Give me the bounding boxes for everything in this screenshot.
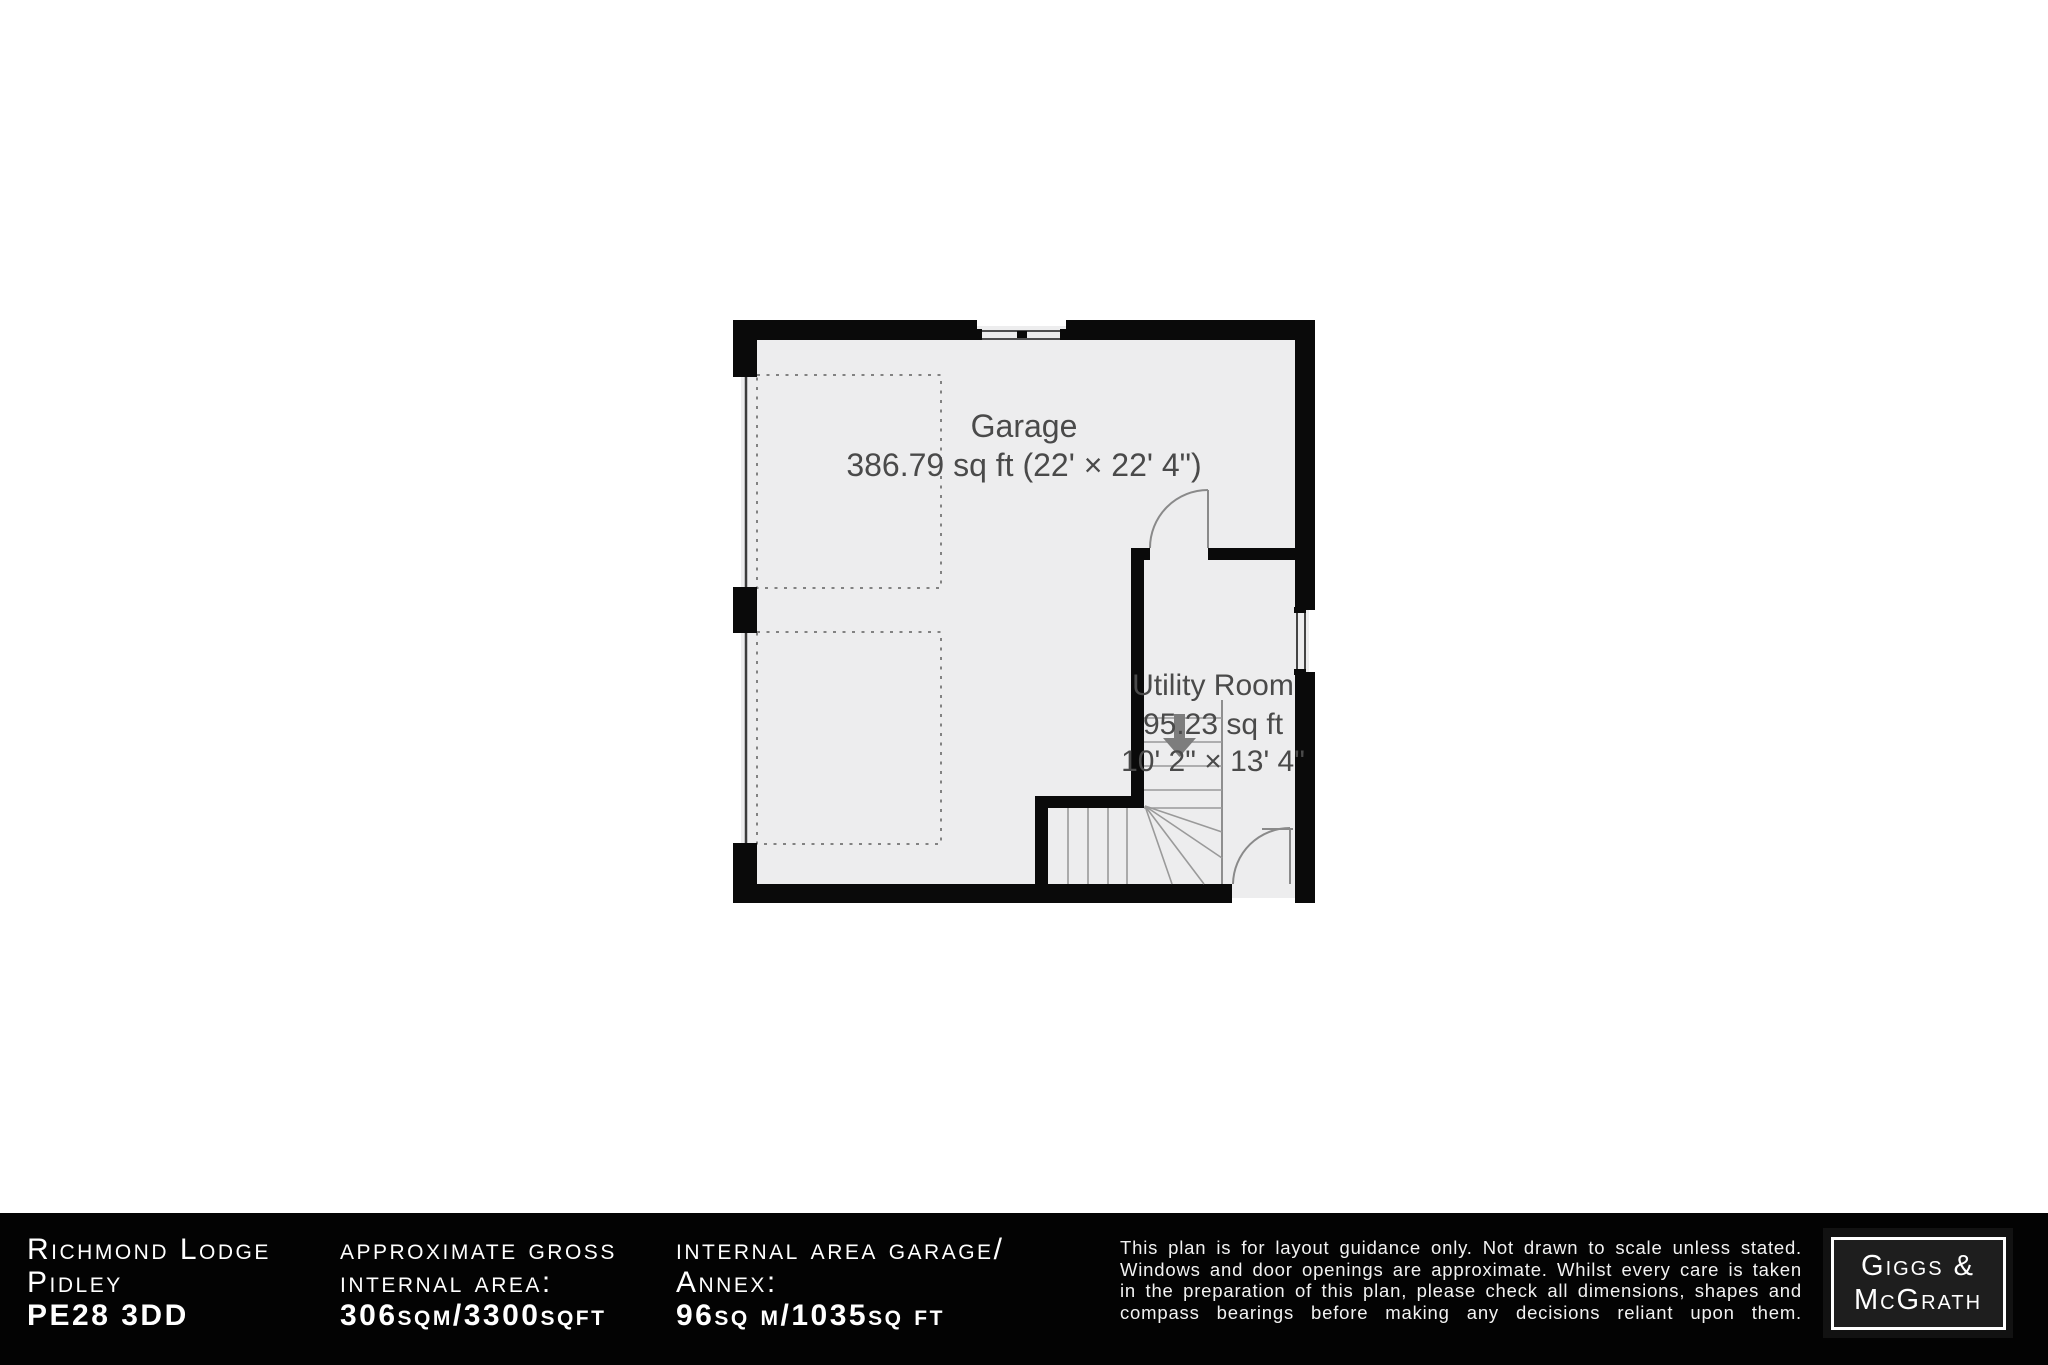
- garage-area-value: 96sq m/1035sq ft: [676, 1299, 1004, 1332]
- garage-area-label: 386.79 sq ft (22' × 22' 4"): [846, 447, 1201, 483]
- wall-right-lower: [1295, 672, 1315, 903]
- utility-dims-label: 10' 2" × 13' 4": [1121, 745, 1305, 778]
- utility-label: Utility Room: [1132, 669, 1294, 702]
- floorplan-page: Garage 386.79 sq ft (22' × 22' 4") Utili…: [0, 0, 2048, 1365]
- logo-line-2: McGrath: [1854, 1283, 1982, 1317]
- wall-right-upper: [1295, 320, 1315, 610]
- gross-area-line-1: approximate gross: [340, 1233, 617, 1266]
- disclaimer-text: This plan is for layout guidance only. N…: [1120, 1237, 1802, 1323]
- garage-annex-area: internal area garage/ Annex: 96sq m/1035…: [676, 1233, 1004, 1332]
- address-line-1: Richmond Lodge: [27, 1233, 271, 1266]
- agency-logo-frame: Giggs & McGrath: [1831, 1237, 2006, 1330]
- wall-utility-top-stub: [1131, 548, 1150, 560]
- wall-left-pier-mid: [733, 587, 757, 633]
- address-postcode: PE28 3DD: [27, 1299, 271, 1332]
- address-line-2: Pidley: [27, 1266, 271, 1299]
- logo-line-1: Giggs &: [1861, 1249, 1975, 1283]
- wall-utility-top: [1208, 548, 1295, 560]
- wall-left-pier-bottom: [733, 843, 757, 903]
- wall-bottom: [733, 884, 1232, 903]
- garage-area-line-2: Annex:: [676, 1266, 1004, 1299]
- wall-left-pier-top: [733, 320, 757, 377]
- wall-top-left: [735, 320, 977, 340]
- gross-area-value: 306sqm/3300sqft: [340, 1299, 617, 1332]
- gross-area-line-2: internal area:: [340, 1266, 617, 1299]
- footer-bar: Richmond Lodge Pidley PE28 3DD approxima…: [0, 1213, 2048, 1365]
- floorplan-drawing: Garage 386.79 sq ft (22' × 22' 4") Utili…: [0, 0, 2048, 1365]
- property-address: Richmond Lodge Pidley PE28 3DD: [27, 1233, 271, 1332]
- garage-area-line-1: internal area garage/: [676, 1233, 1004, 1266]
- gross-internal-area: approximate gross internal area: 306sqm/…: [340, 1233, 617, 1332]
- wall-stair-top: [1035, 796, 1144, 808]
- utility-area-label: 95.23 sq ft: [1143, 708, 1284, 741]
- wall-stair-left: [1035, 796, 1048, 884]
- agency-logo: Giggs & McGrath: [1823, 1228, 2013, 1338]
- garage-label: Garage: [971, 408, 1078, 444]
- wall-top-right: [1066, 320, 1315, 340]
